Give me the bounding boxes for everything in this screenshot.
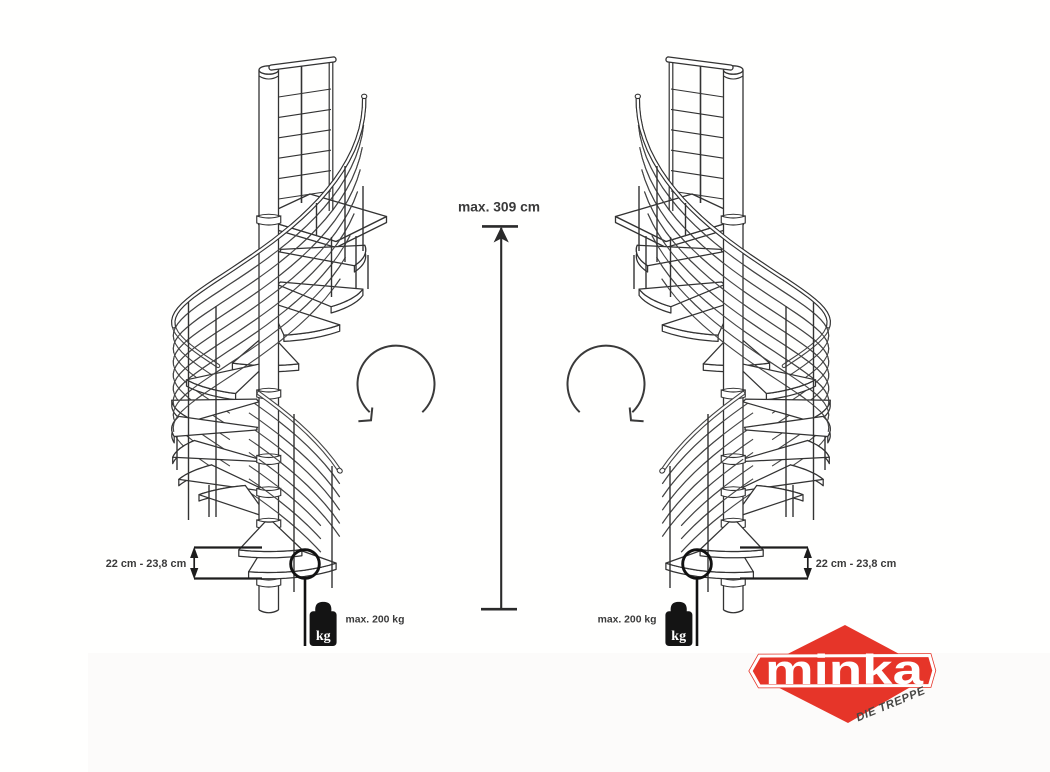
svg-text:max. 200 kg: max. 200 kg [598, 615, 657, 626]
svg-text:max. 309 cm: max. 309 cm [458, 200, 540, 215]
svg-text:minka: minka [765, 646, 924, 693]
svg-text:22 cm - 23,8 cm: 22 cm - 23,8 cm [106, 558, 187, 570]
svg-text:kg: kg [316, 629, 331, 644]
svg-text:22 cm - 23,8 cm: 22 cm - 23,8 cm [816, 558, 897, 570]
svg-text:kg: kg [671, 629, 686, 644]
svg-text:max. 200 kg: max. 200 kg [346, 615, 405, 626]
